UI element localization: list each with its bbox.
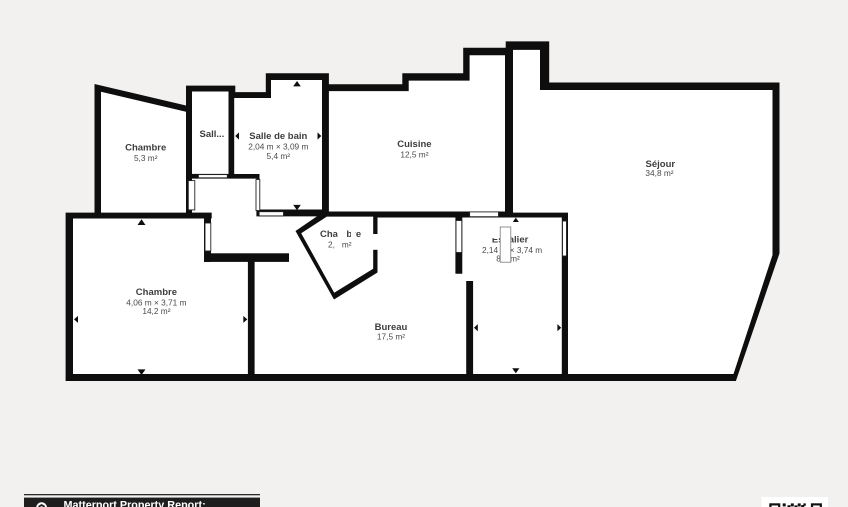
svg-text:34,8 m²: 34,8 m² (645, 168, 673, 178)
svg-text:Cuisine: Cuisine (397, 139, 431, 150)
svg-text:Sall...: Sall... (199, 129, 224, 140)
svg-text:5,4 m²: 5,4 m² (267, 151, 291, 161)
svg-text:12,5 m²: 12,5 m² (400, 149, 428, 159)
svg-text:Matterport Property Report:: Matterport Property Report: (64, 500, 206, 507)
svg-text:14,2 m²: 14,2 m² (142, 306, 170, 316)
svg-text:5,3 m²: 5,3 m² (134, 153, 158, 163)
svg-text:2,04 m × 3,09 m: 2,04 m × 3,09 m (248, 141, 308, 151)
svg-text:17,5 m²: 17,5 m² (377, 332, 405, 342)
svg-text:Chambre: Chambre (125, 143, 166, 154)
svg-text:Chambre: Chambre (136, 287, 177, 298)
